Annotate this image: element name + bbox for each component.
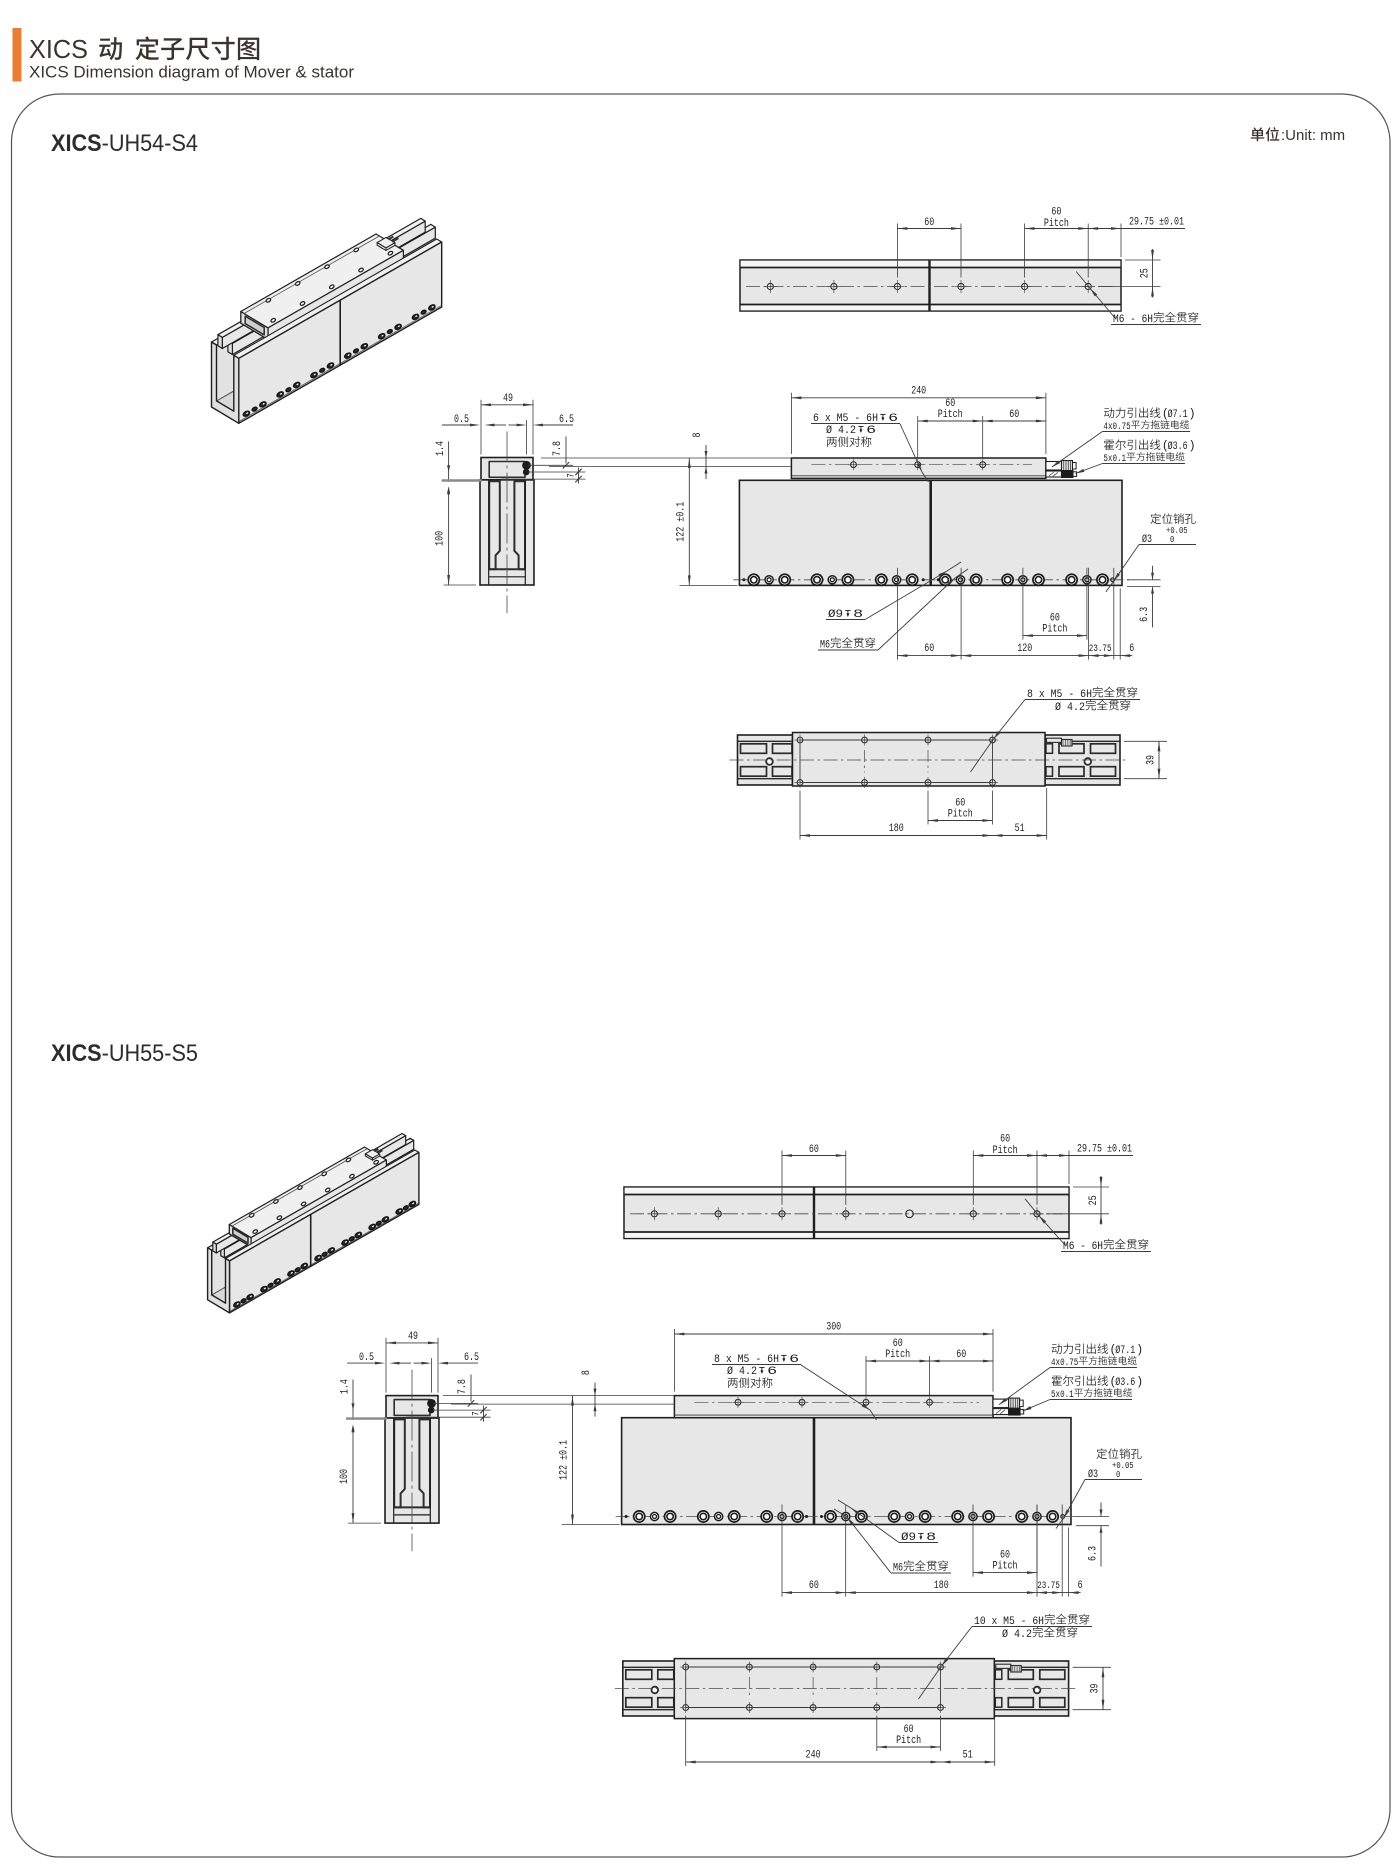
svg-text:Ø7.1: Ø7.1 [1168,409,1188,421]
svg-text::Unit: mm: :Unit: mm [1281,127,1345,144]
svg-text:): ) [1136,1376,1143,1389]
svg-text:XICS: XICS [29,36,88,64]
svg-text:7.8: 7.8 [457,1379,469,1394]
svg-text:0.5: 0.5 [359,1352,374,1364]
svg-text:1.4: 1.4 [435,441,447,456]
svg-text:7: 7 [472,1411,483,1416]
svg-text:6.3: 6.3 [1139,607,1151,622]
svg-text:Pitch: Pitch [1044,218,1069,230]
svg-text:Ø3.6: Ø3.6 [1115,1377,1135,1389]
svg-text:6: 6 [767,1366,777,1378]
svg-text:0: 0 [1116,1469,1121,1480]
svg-text:60: 60 [1051,207,1061,219]
svg-text:0.5: 0.5 [454,414,469,426]
svg-text:240: 240 [911,385,926,397]
svg-text:Pitch: Pitch [938,409,963,421]
svg-text:Pitch: Pitch [993,1561,1018,1573]
svg-text:25: 25 [1140,268,1152,278]
svg-text:7.8: 7.8 [552,441,564,456]
svg-text:120: 120 [1017,643,1032,655]
svg-text:39: 39 [1146,755,1158,765]
svg-text:Ø 4.2: Ø 4.2 [727,1366,757,1378]
svg-text:49: 49 [408,1331,418,1343]
svg-text:180: 180 [889,823,904,835]
svg-text:180: 180 [934,1580,949,1592]
svg-text:Ø 4.2: Ø 4.2 [1055,702,1085,714]
svg-text:60: 60 [956,1349,966,1361]
svg-text:): ) [1136,1344,1143,1357]
svg-text:Pitch: Pitch [885,1349,910,1361]
svg-text:122 ±0.1: 122 ±0.1 [675,501,687,541]
svg-text:100: 100 [339,1469,351,1484]
svg-text:23.75: 23.75 [1089,644,1112,655]
svg-text:60: 60 [1000,1134,1010,1146]
svg-text:Pitch: Pitch [896,1735,921,1747]
svg-text:Pitch: Pitch [1042,624,1067,636]
svg-text:6.3: 6.3 [1088,1546,1100,1561]
svg-text:29.75 ±0.01: 29.75 ±0.01 [1077,1144,1132,1156]
svg-text:6: 6 [866,425,876,437]
svg-text:8: 8 [692,433,704,438]
svg-text:): ) [1189,408,1196,421]
svg-text:Pitch: Pitch [993,1145,1018,1157]
svg-text:60: 60 [1009,409,1019,421]
svg-text:XICS-UH54-S4: XICS-UH54-S4 [51,130,198,157]
svg-text:60: 60 [809,1580,819,1592]
svg-text:XICS Dimension diagram of Move: XICS Dimension diagram of Mover & stator [29,63,354,82]
svg-text:60: 60 [924,643,934,655]
svg-text:39: 39 [1090,1684,1102,1694]
svg-text:300: 300 [826,1322,841,1334]
svg-text:51: 51 [1015,823,1025,835]
svg-text:XICS-UH55-S5: XICS-UH55-S5 [51,1040,198,1067]
svg-text:23.75: 23.75 [1037,1581,1060,1592]
svg-text:60: 60 [924,217,934,229]
svg-text:1.4: 1.4 [340,1379,352,1394]
svg-text:6.5: 6.5 [464,1352,479,1364]
svg-text:8: 8 [581,1370,593,1375]
svg-text:29.75 ±0.01: 29.75 ±0.01 [1129,217,1184,229]
svg-text:Pitch: Pitch [948,809,973,821]
svg-text:7: 7 [567,473,578,478]
svg-text:Ø 4.2: Ø 4.2 [826,425,856,437]
svg-text:6: 6 [1078,1580,1083,1592]
svg-text:60: 60 [809,1144,819,1156]
svg-text:49: 49 [503,393,513,405]
svg-text:240: 240 [806,1750,821,1762]
svg-text:122 ±0.1: 122 ±0.1 [559,1440,571,1480]
svg-text:100: 100 [435,531,447,546]
svg-text:6: 6 [1129,643,1134,655]
svg-text:25: 25 [1088,1195,1100,1205]
svg-text:Ø7.1: Ø7.1 [1115,1345,1135,1357]
svg-text:Ø3.6: Ø3.6 [1168,441,1188,453]
svg-text:51: 51 [963,1750,973,1762]
svg-text:6.5: 6.5 [559,414,574,426]
svg-text:0: 0 [1170,534,1175,545]
svg-text:): ) [1189,440,1196,453]
svg-text:Ø 4.2: Ø 4.2 [1002,1629,1032,1641]
